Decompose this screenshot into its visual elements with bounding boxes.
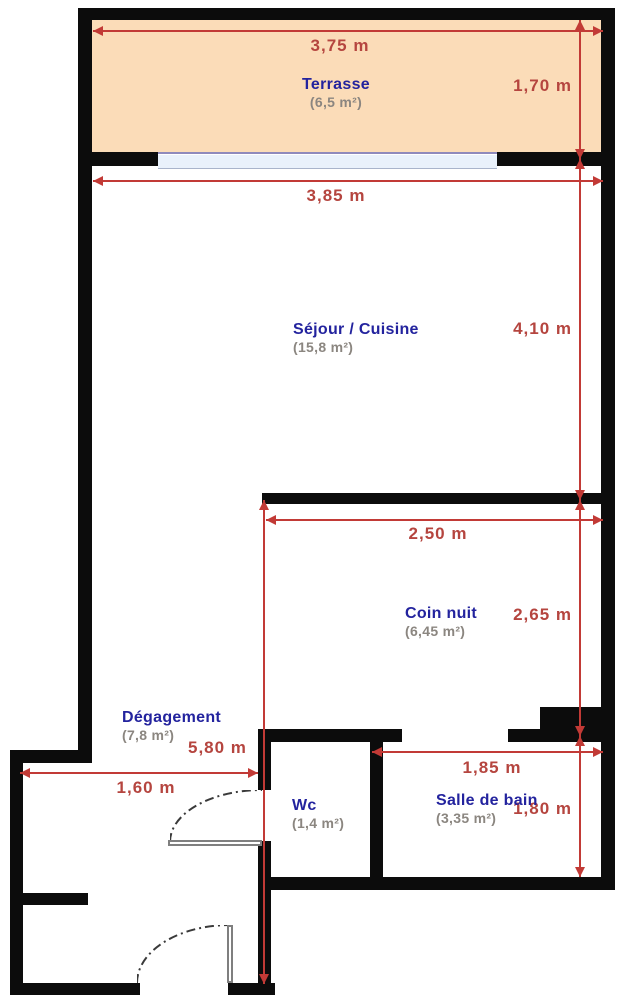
- dim-label-coin-nuit-width: 2,50 m: [409, 524, 468, 544]
- dim-label-terrasse-width: 3,75 m: [311, 36, 370, 56]
- arrowhead: [575, 867, 585, 877]
- dim-label-salle-de-bain-width: 1,85 m: [463, 758, 522, 778]
- door-leaf-wc: [168, 840, 262, 846]
- dim-label-terrasse-depth: 1,70 m: [442, 76, 572, 96]
- room-area: (1,4 m²): [292, 815, 344, 831]
- arrowhead: [593, 515, 603, 525]
- arrowhead: [259, 974, 269, 984]
- floor-plan: 3,75 m 1,70 m 3,85 m 4,10 m 2,50 m 2,65 …: [0, 0, 629, 1000]
- dim-label-sejour-depth: 4,10 m: [442, 319, 572, 339]
- wall-window-stub-left: [92, 152, 158, 166]
- room-label-salle-de-bain: Salle de bain (3,35 m²): [436, 792, 538, 826]
- arrowhead: [575, 20, 585, 30]
- room-name: Terrasse: [276, 76, 396, 94]
- room-area: (6,45 m²): [405, 623, 477, 639]
- room-label-sejour-cuisine: Séjour / Cuisine (15,8 m²): [293, 321, 419, 355]
- dim-line-salle-de-bain-width: [372, 751, 603, 753]
- room-name: Séjour / Cuisine: [293, 321, 419, 339]
- arrowhead: [259, 500, 269, 510]
- room-label-wc: Wc (1,4 m²): [292, 797, 344, 831]
- arrowhead: [575, 490, 585, 500]
- wall-left-upper: [78, 8, 92, 763]
- dim-line-degagement-length: [263, 500, 265, 984]
- room-area: (6,5 m²): [276, 94, 396, 110]
- arrowhead: [93, 176, 103, 186]
- window-terrasse: [158, 152, 497, 169]
- room-area: (7,8 m²): [122, 727, 221, 743]
- arrowhead: [575, 726, 585, 736]
- room-name: Salle de bain: [436, 792, 538, 810]
- arrowhead: [593, 176, 603, 186]
- arrowhead: [93, 26, 103, 36]
- wall-bottom-mid: [228, 983, 275, 995]
- arrowhead: [593, 747, 603, 757]
- arrowhead: [575, 500, 585, 510]
- dim-line-terrasse-width: [93, 30, 603, 32]
- arrowhead: [575, 736, 585, 746]
- dim-label-entry-width: 1,60 m: [117, 778, 176, 798]
- dim-line-sejour-width: [93, 180, 603, 182]
- wall-right: [601, 8, 615, 890]
- room-area: (15,8 m²): [293, 339, 419, 355]
- room-label-terrasse: Terrasse (6,5 m²): [276, 76, 396, 110]
- wall-left-lower: [10, 750, 23, 995]
- arrowhead: [20, 768, 30, 778]
- door-arc-wc: [170, 790, 262, 842]
- door-arc-entrance: [137, 925, 230, 983]
- room-name: Coin nuit: [405, 605, 477, 623]
- room-area: (3,35 m²): [436, 810, 538, 826]
- wall-bottom-right: [262, 877, 615, 890]
- arrowhead: [266, 515, 276, 525]
- dim-line-entry-width: [20, 772, 258, 774]
- room-label-coin-nuit: Coin nuit (6,45 m²): [405, 605, 477, 639]
- wall-window-stub-right: [497, 152, 601, 166]
- dim-label-sejour-width: 3,85 m: [307, 186, 366, 206]
- wall-pillar: [540, 707, 601, 732]
- wall-left-stub: [23, 893, 88, 905]
- door-leaf-entrance: [227, 925, 233, 983]
- arrowhead: [575, 159, 585, 169]
- arrowhead: [575, 149, 585, 159]
- wall-top: [78, 8, 615, 20]
- dim-line-coin-nuit-width: [266, 519, 603, 521]
- wall-coin-nuit-top: [262, 493, 601, 504]
- arrowhead: [593, 26, 603, 36]
- arrowhead: [248, 768, 258, 778]
- room-name: Dégagement: [122, 709, 221, 727]
- room-label-degagement: Dégagement (7,8 m²): [122, 709, 221, 743]
- arrowhead: [372, 747, 382, 757]
- wall-bottom-left: [10, 983, 140, 995]
- room-name: Wc: [292, 797, 344, 815]
